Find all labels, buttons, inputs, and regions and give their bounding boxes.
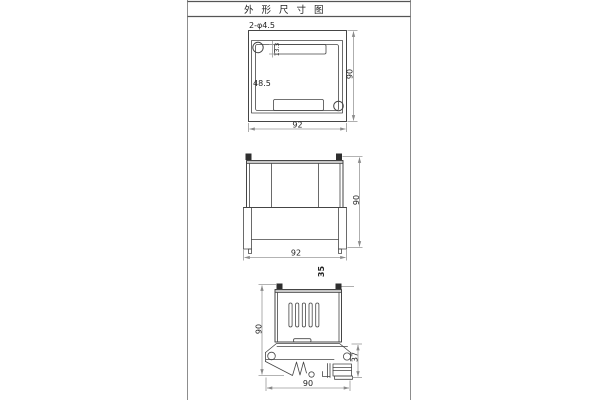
top-slot <box>275 45 327 55</box>
vent-slot <box>296 303 299 327</box>
spring-loop <box>309 372 314 377</box>
clip-hook <box>323 372 331 377</box>
dim-slot-height-value: 13.3 <box>274 43 281 57</box>
clip-latch <box>333 364 352 376</box>
corner-block-right <box>336 154 342 161</box>
page-title: 外 形 尺 寸 图 <box>244 4 326 16</box>
dim-hole-offset-value: 48.5 <box>253 79 271 88</box>
bottom-slot <box>274 100 324 111</box>
dim-side-height: 90 <box>254 285 284 376</box>
vent-slots <box>289 303 319 327</box>
screw-hole-left <box>268 352 276 360</box>
mounting-hole-top-left <box>253 42 263 52</box>
dim-top-width: 92 <box>249 121 347 133</box>
drawing-canvas: 外 形 尺 寸 图 2-φ4.5 13.3 48.5 90 <box>0 0 600 400</box>
top-view: 2-φ4.5 13.3 48.5 90 92 <box>249 21 358 132</box>
dim-front-height-value: 90 <box>352 195 361 205</box>
front-view: 90 92 35 <box>244 154 363 278</box>
dimension-drawing-page: 外 形 尺 寸 图 2-φ4.5 13.3 48.5 90 <box>0 0 600 400</box>
base-foot-right <box>339 249 342 254</box>
dim-front-width-value: 92 <box>291 249 301 258</box>
dim-front-height: 90 <box>343 157 363 248</box>
clip-latch-foot <box>335 376 353 379</box>
dim-slot-height: 13.3 <box>269 41 281 58</box>
din-base <box>266 344 353 380</box>
base-foot-left <box>249 249 252 254</box>
dim-top-width-value: 92 <box>292 121 302 130</box>
dim-top-height-value: 90 <box>346 69 355 79</box>
side-body <box>275 290 342 343</box>
vent-slot <box>289 303 292 327</box>
top-view-inner-frame <box>252 41 343 114</box>
clip-spring <box>266 362 307 376</box>
dim-clip-depth: 37 <box>350 344 362 378</box>
corner-block-right <box>336 284 342 290</box>
top-view-cutout-outline <box>256 45 339 111</box>
dim-side-height-value: 90 <box>254 324 263 334</box>
corner-block-left <box>246 154 252 161</box>
front-body <box>247 161 344 208</box>
side-view: 90 37 90 <box>254 284 362 392</box>
sheet-frame: 外 形 尺 寸 图 <box>188 0 411 400</box>
dim-front-width: 92 <box>244 249 347 261</box>
base-top-edge <box>266 344 351 353</box>
hole-callout-label: 2-φ4.5 <box>249 21 275 30</box>
dim-side-width-value: 90 <box>303 379 313 388</box>
vent-slot <box>309 303 312 327</box>
dim-top-height: 90 <box>346 31 358 122</box>
vent-slot <box>316 303 319 327</box>
dim-rail-width-value: 35 <box>317 266 326 278</box>
base-flange-right <box>339 208 347 250</box>
base-flange-left <box>244 208 252 250</box>
corner-block-left <box>277 284 283 290</box>
dim-clip-depth-value: 37 <box>350 352 359 362</box>
vent-slot <box>302 303 305 327</box>
